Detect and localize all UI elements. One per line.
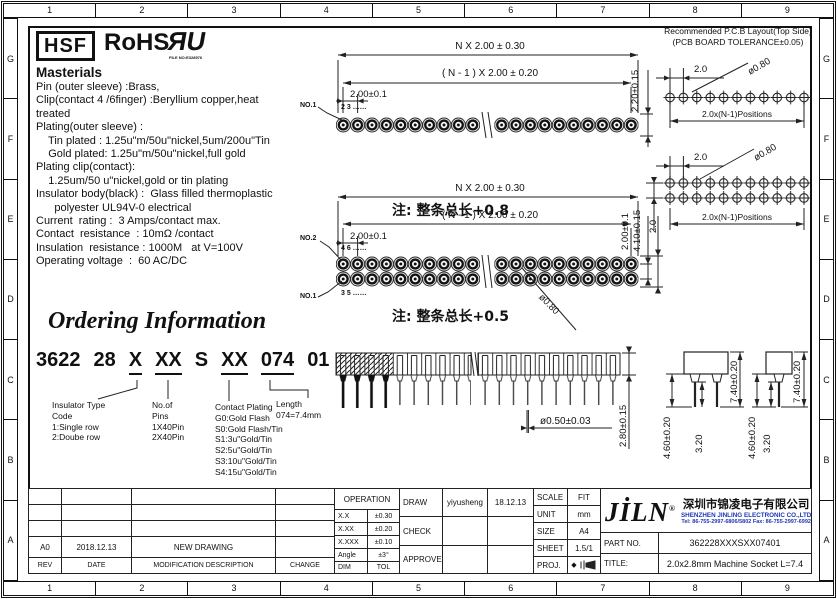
info-unit-label: UNIT: [533, 505, 568, 523]
info-proj-label: PROJ.: [533, 556, 568, 574]
line-item: 074=7.4mm: [276, 410, 321, 421]
sv-height: 2.80±0.15: [618, 405, 629, 447]
line-item: Operating voltage : 60 AC/DC: [36, 255, 273, 268]
rev-empty-cell: [28, 520, 62, 537]
line-item: polyester UL94V-0 electrical: [36, 202, 273, 215]
ev2-total: 7.40±0.20: [792, 361, 803, 403]
ev1-total: 7.40±0.20: [729, 361, 740, 403]
d2-dim-n1: ( N - 1 ) X 2.00 ± 0.20: [405, 210, 575, 221]
ev1-mid: 3.20: [694, 435, 705, 454]
d2-pin1-label: NO.1: [300, 293, 316, 300]
line-item: 1:Single row: [52, 422, 105, 433]
line-item: 1.25um/50 u"nickel,gold or tin plating: [36, 175, 273, 188]
ordering-title: Ordering Information: [48, 308, 266, 335]
line-item: Gold plated: 1.25u"m/50u"nickel,full gol…: [36, 148, 273, 161]
tol-value: ±0.30: [367, 509, 400, 523]
rev-header-rev: REV: [28, 557, 62, 574]
projection-diamond-icon: ◆: [571, 561, 576, 569]
rev-description: NEW DRAWING: [131, 536, 276, 558]
d2-note: 注: 整条总长+0.5: [392, 306, 509, 326]
signoff-check-date: [487, 516, 534, 546]
rev-empty-cell: [275, 520, 335, 537]
line-item: S0:Gold Flash/Tin: [215, 424, 283, 435]
line-item: Tin plated : 1.25u"m/50u"nickel,5um/200u…: [36, 135, 273, 148]
signoff-draw-date: 18.12.13: [487, 488, 534, 517]
d2-dim-pitch: 2.00±0.1: [350, 231, 387, 242]
tol-header: OPERATION: [334, 488, 400, 510]
callout-length: Length074=7.4mm: [276, 399, 321, 421]
info-proj-value: ◆: [567, 556, 601, 574]
code-length: 074: [261, 349, 294, 375]
callout-pin-count: No.ofPins1X40Pin2X40Pin: [152, 400, 184, 443]
line-item: S4:15u"Gold/Tin: [215, 467, 283, 478]
registered-mark: ®: [669, 504, 676, 513]
code-s: S: [195, 349, 208, 375]
materials-heading: Masterials: [36, 65, 102, 80]
info-size-label: SIZE: [533, 522, 568, 540]
pcb-title-line1: Recommended P.C.B Layout(Top Side): [645, 26, 831, 36]
d1-dim-total: N X 2.00 ± 0.30: [420, 41, 560, 52]
line-item: S3:10u"Gold/Tin: [215, 456, 283, 467]
rev-id: A0: [28, 536, 62, 558]
line-item: Plating clip(contact):: [36, 161, 273, 174]
tol-label: DIM: [334, 561, 368, 574]
tol-label: X.X: [334, 509, 368, 523]
rev-empty-cell: [61, 488, 132, 505]
rev-empty-cell: [131, 504, 276, 521]
callout-contact-plating: Contact PlatingG0:Gold FlashS0:Gold Flas…: [215, 402, 283, 478]
d2-pin2-numbers: 4 6 ……: [341, 245, 367, 252]
line-item: Current rating : 3 Amps/contact max.: [36, 215, 273, 228]
title-value: 2.0x2.8mm Machine Socket L=7.4: [658, 553, 812, 574]
ordering-code: 3622 28 X XX S XX 074 01: [36, 349, 329, 375]
rev-empty-cell: [28, 488, 62, 505]
signoff-check-name: [442, 516, 488, 546]
code-suffix: 01: [307, 349, 329, 375]
info-scale-label: SCALE: [533, 488, 568, 506]
company-logo: JİLN®: [605, 494, 676, 527]
ev2-pin-len: 4.60±0.20: [747, 417, 758, 459]
line-item: Code: [52, 411, 105, 422]
code-insulator-type: X: [129, 349, 142, 375]
info-size-value: A4: [567, 522, 601, 540]
pcb-single-positions: 2.0x(N-1)Positions: [667, 109, 807, 119]
line-item: Pin (outer sleeve) :Brass,: [36, 81, 273, 94]
line-item: Contact resistance : 10mΩ /contact: [36, 228, 273, 241]
info-scale-value: FIT: [567, 488, 601, 506]
tol-value: ±3°: [367, 548, 400, 562]
rev-date: 2018.12.13: [61, 536, 132, 558]
line-item: 2:Doube row: [52, 432, 105, 443]
signoff-draw-label: DRAW: [399, 488, 443, 517]
company-name-en: SHENZHEN JINLING ELECTRONIC CO.,LTD: [681, 512, 811, 519]
info-unit-value: mm: [567, 505, 601, 523]
title-label: TITLE:: [600, 553, 659, 574]
d1-pin1-label: NO.1: [300, 102, 316, 109]
tol-value: TOL: [367, 561, 400, 574]
rev-empty-cell: [28, 504, 62, 521]
line-item: S2:5u"Gold/Tin: [215, 445, 283, 456]
d2-dim-height: 4.10±0.15: [632, 210, 643, 252]
line-item: 1X40Pin: [152, 422, 184, 433]
code-series: 3622: [36, 349, 81, 375]
pcb-double-row-pitch: 2.0: [648, 220, 659, 233]
rev-empty-cell: [131, 520, 276, 537]
rev-empty-cell: [275, 488, 335, 505]
company-name-cn: 深圳市锦凌电子有限公司: [681, 496, 811, 512]
ul-file-number: FILE NO:E328976: [169, 55, 202, 60]
tol-value: ±0.10: [367, 535, 400, 549]
rev-header-date: DATE: [61, 557, 132, 574]
part-no-value: 362228XXXSXX07401: [658, 532, 812, 554]
signoff-approve-date: [487, 545, 534, 574]
company-contact: Tel: 86-755-2997-6806/5802 Fax: 86-755-2…: [681, 519, 811, 525]
company-block: JİLN® 深圳市锦凌电子有限公司 SHENZHEN JINLING ELECT…: [600, 488, 812, 533]
rev-header-description: MODIFICATION DESCRIPTION: [131, 557, 276, 574]
line-item: Insulation resistance : 1000M at V=100V: [36, 242, 273, 255]
line-item: 2X40Pin: [152, 432, 184, 443]
pcb-double-pitch: 2.0: [694, 152, 707, 163]
d1-dim-pitch: 2.00±0.1: [350, 89, 387, 100]
line-item: Insulator Type: [52, 400, 105, 411]
line-item: Insulator body(black) : Glass filled the…: [36, 188, 273, 201]
ev1-pin-len: 4.60±0.20: [662, 417, 673, 459]
tol-label: X.XXX: [334, 535, 368, 549]
d1-dim-height: 2.20±0.15: [630, 70, 641, 112]
materials-list: Pin (outer sleeve) :Brass,Clip(contact 4…: [36, 81, 273, 269]
ev2-mid: 3.20: [762, 435, 773, 454]
line-item: Length: [276, 399, 321, 410]
pcb-double-positions: 2.0x(N-1)Positions: [667, 212, 807, 222]
pcb-title-line2: (PCB BOARD TOLERANCE±0.05): [645, 37, 831, 47]
hsf-logo: HSF: [36, 31, 95, 61]
rev-empty-cell: [275, 504, 335, 521]
d2-dim-total: N X 2.00 ± 0.30: [420, 183, 560, 194]
signoff-approve-label: APPROVE: [399, 545, 443, 574]
signoff-approve-name: [442, 545, 488, 574]
rohs-logo: RoHS: [104, 29, 169, 57]
callout-insulator-type: Insulator TypeCode1:Single row2:Doube ro…: [52, 400, 105, 443]
line-item: Contact Plating: [215, 402, 283, 413]
datasheet-page: 123456789 123456789 GFEDCBA GFEDCBA: [0, 0, 837, 599]
d1-dim-n1: ( N - 1 ) X 2.00 ± 0.20: [405, 68, 575, 79]
info-sheet-label: SHEET: [533, 539, 568, 557]
rev-header-change: CHANGE: [275, 557, 335, 574]
line-item: Plating(outer sleeve) :: [36, 121, 273, 134]
line-item: S1:3u"Gold/Tin: [215, 434, 283, 445]
company-logo-text: JİLN: [605, 497, 669, 527]
pcb-single-pitch: 2.0: [694, 64, 707, 75]
rev-change: [275, 536, 335, 558]
ul-logo: ЯU: [165, 26, 208, 57]
rev-empty-cell: [61, 520, 132, 537]
code-pin-count: XX: [155, 349, 182, 375]
third-angle-projection-icon: [579, 560, 597, 570]
sv-pin-dia: ø0.50±0.03: [540, 416, 591, 427]
d2-pin1-numbers: 3 5 ……: [341, 290, 367, 297]
code-plating: XX: [221, 349, 248, 375]
tol-label: Angle: [334, 548, 368, 562]
line-item: treated: [36, 108, 273, 121]
d1-pin-numbers: 2 3 ……: [341, 104, 367, 111]
line-item: No.of: [152, 400, 184, 411]
line-item: Clip(contact 4 /6finger) :Beryllium copp…: [36, 94, 273, 107]
d2-pin2-label: NO.2: [300, 235, 316, 242]
part-no-label: PART NO.: [600, 532, 659, 554]
rev-empty-cell: [131, 488, 276, 505]
tol-label: X.XX: [334, 522, 368, 536]
line-item: G0:Gold Flash: [215, 413, 283, 424]
info-sheet-value: 1.5/1: [567, 539, 601, 557]
code-pitch: 28: [94, 349, 116, 375]
tol-value: ±0.20: [367, 522, 400, 536]
signoff-check-label: CHECK: [399, 516, 443, 546]
rev-empty-cell: [61, 504, 132, 521]
line-item: Pins: [152, 411, 184, 422]
signoff-draw-name: yiyusheng: [442, 488, 488, 517]
d2-dim-row-pitch: 2.00±0.1: [620, 213, 631, 250]
